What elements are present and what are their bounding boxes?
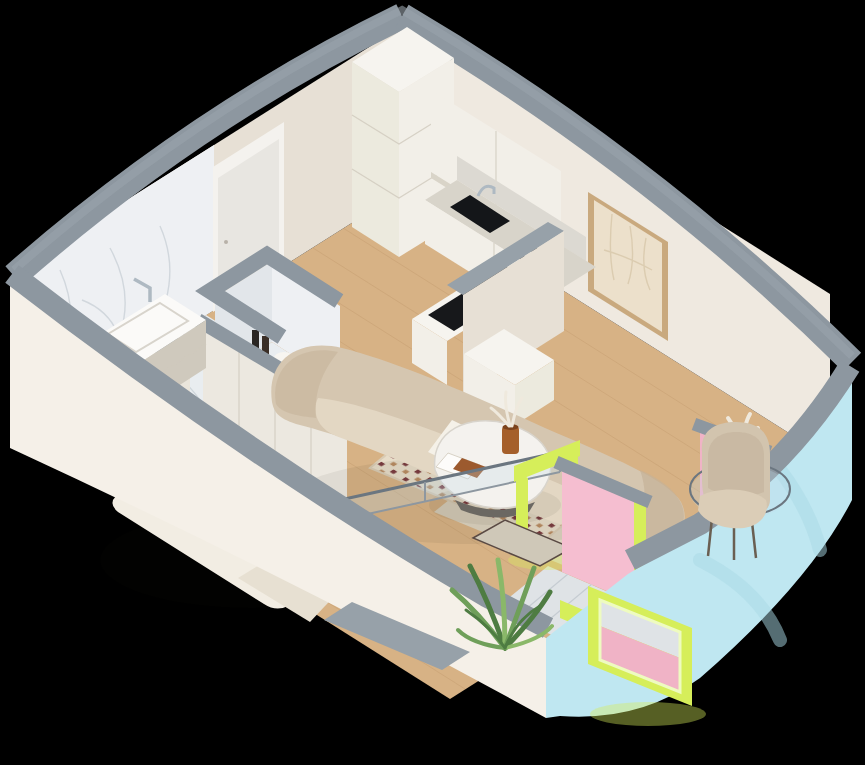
lime-glow [590, 702, 706, 726]
door-handle [224, 240, 228, 244]
armchair-back-inner [708, 432, 764, 495]
apartment-isometric-render [0, 0, 865, 765]
render-stage [0, 0, 865, 765]
